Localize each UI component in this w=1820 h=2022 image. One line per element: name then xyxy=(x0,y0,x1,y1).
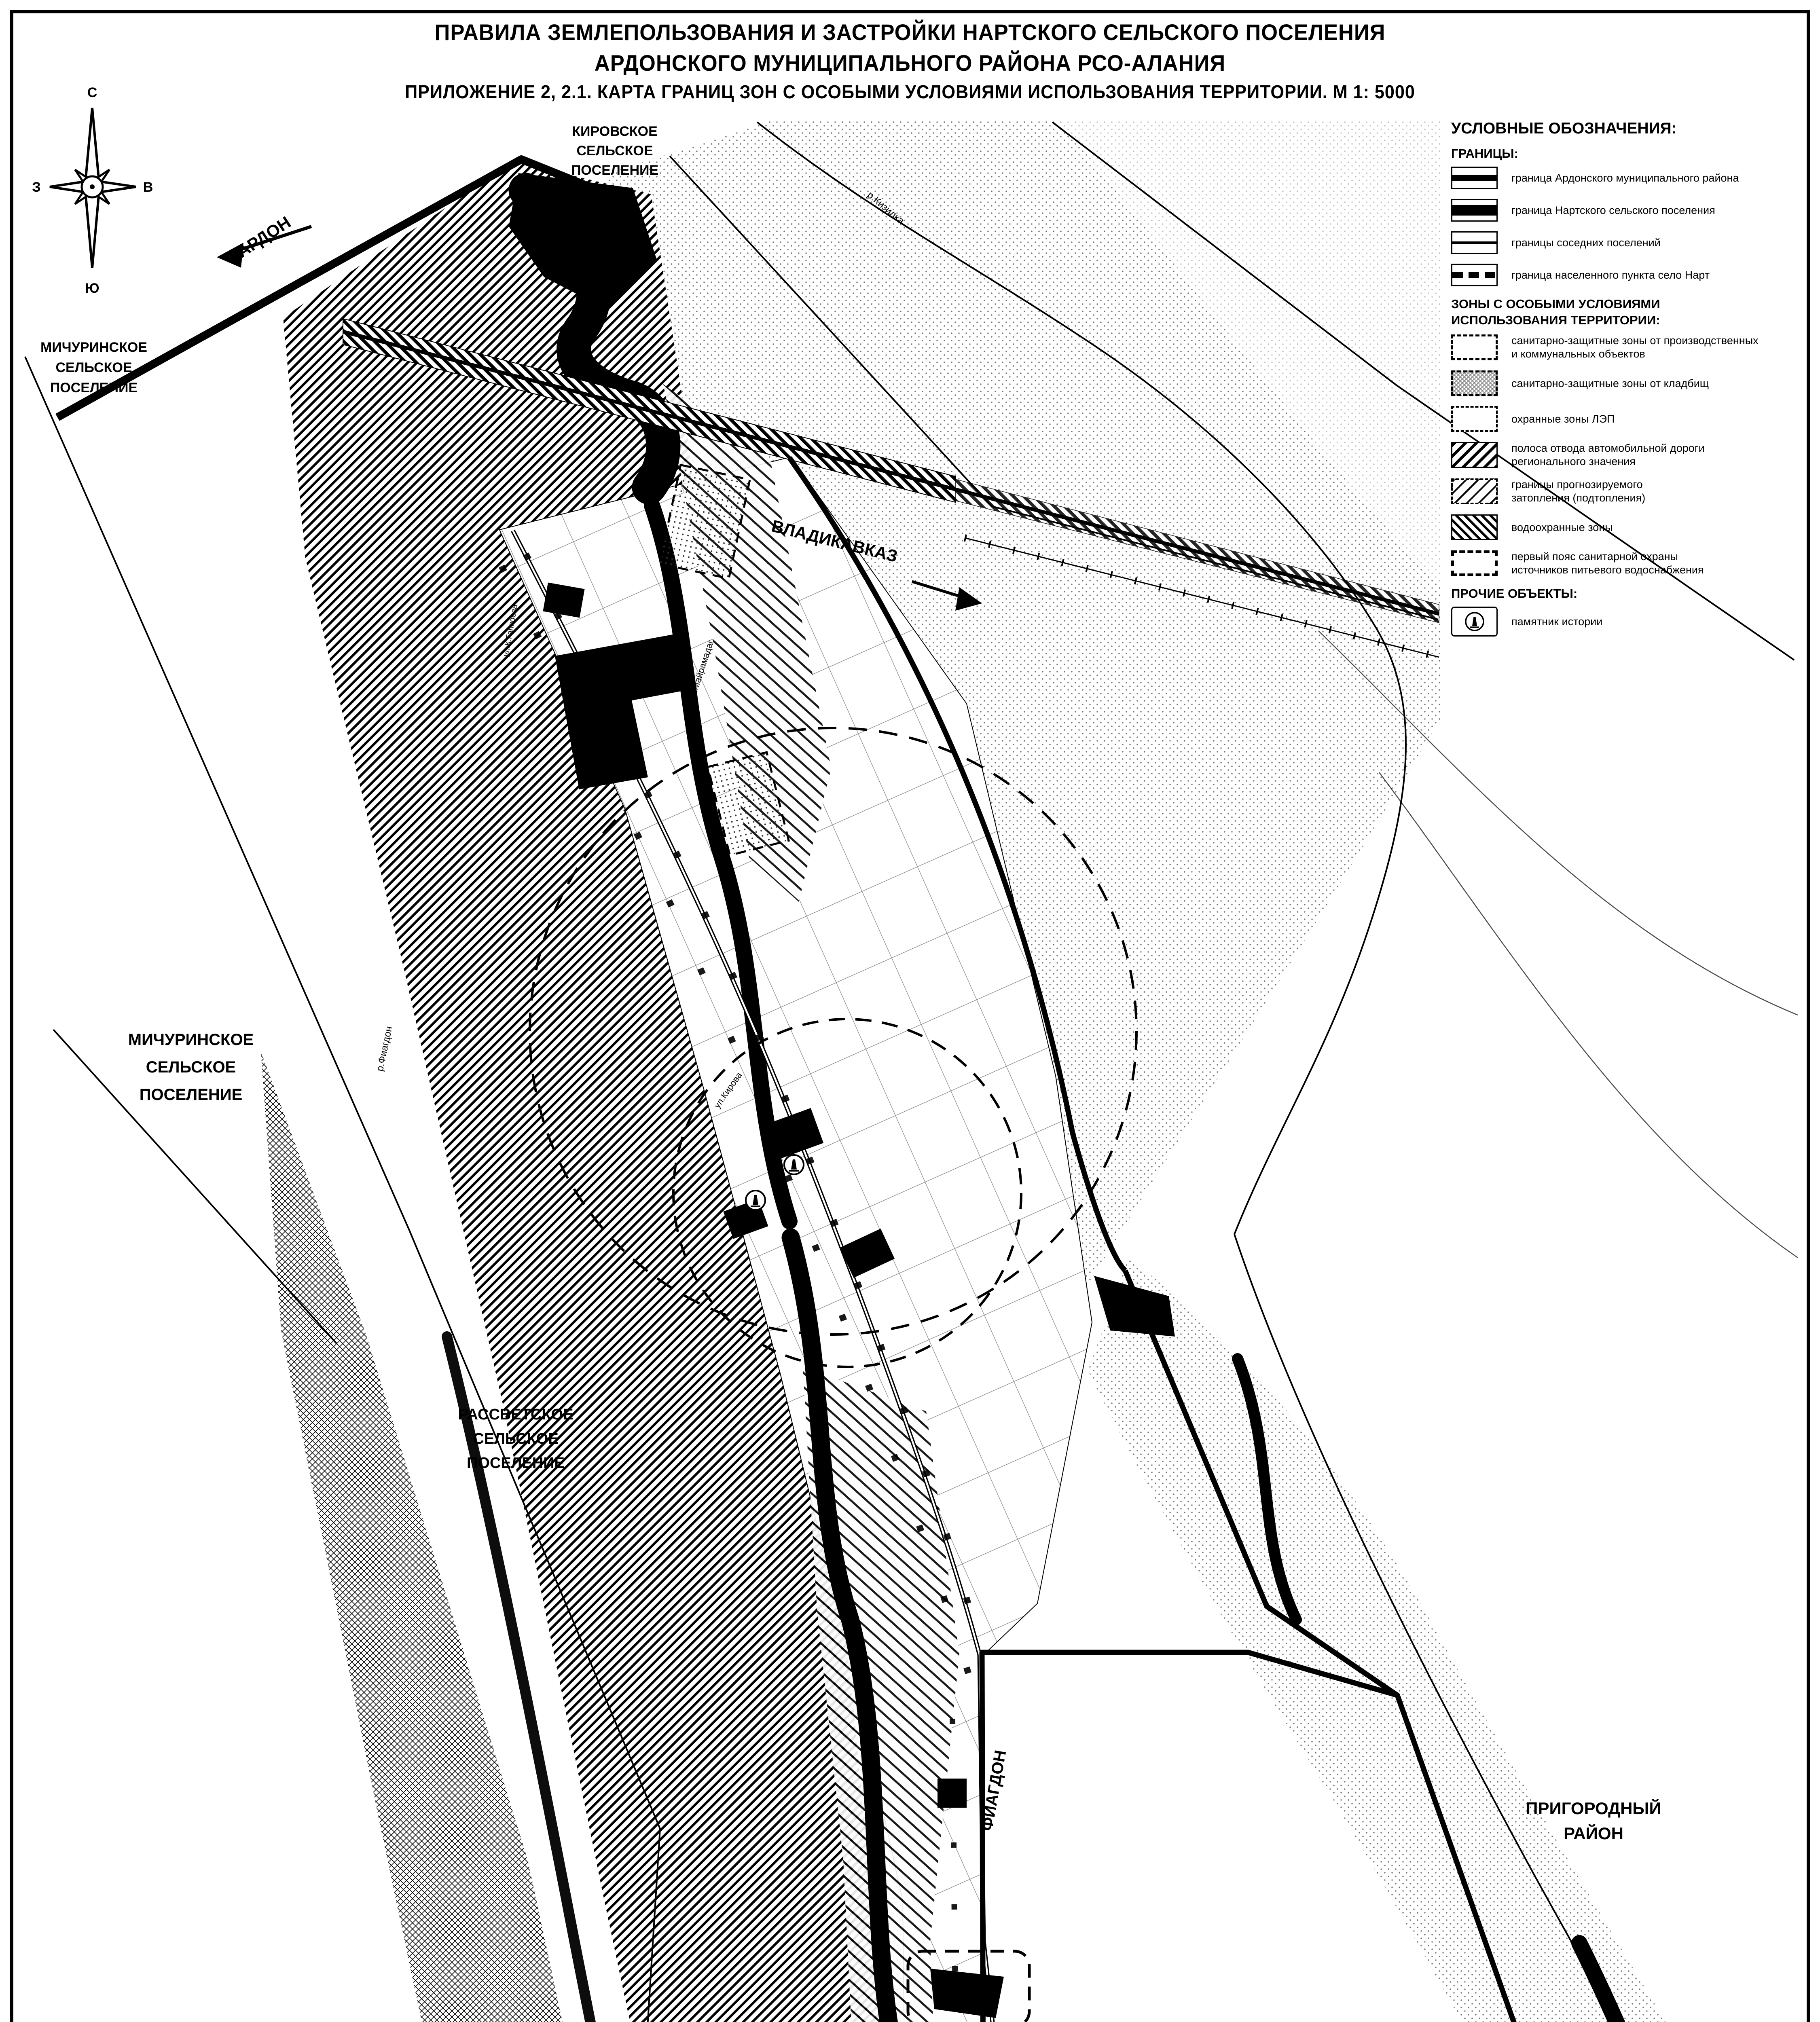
svg-text:СЕЛЬСКОЕ: СЕЛЬСКОЕ xyxy=(55,360,132,375)
monument-icon xyxy=(1464,611,1485,632)
legend-item-flood-zone: границы прогнозируемогозатопления (подто… xyxy=(1451,478,1807,505)
page-title: ПРАВИЛА ЗЕМЛЕПОЛЬЗОВАНИЯ И ЗАСТРОЙКИ НАР… xyxy=(55,17,1765,105)
svg-text:ПОСЕЛЕНИЕ: ПОСЕЛЕНИЕ xyxy=(571,163,658,178)
legend-label: граница Ардонского муниципального района xyxy=(1511,171,1739,185)
neighbor-borders-swatch xyxy=(1451,231,1498,254)
svg-text:МИЧУРИНСКОЕ: МИЧУРИНСКОЕ xyxy=(40,340,147,355)
settlement-border-swatch xyxy=(1451,199,1498,222)
legend-title: УСЛОВНЫЕ ОБОЗНАЧЕНИЯ: xyxy=(1451,120,1807,137)
legend-item-settlement-border: граница Нартского сельского поселения xyxy=(1451,199,1807,222)
history-monument-icon xyxy=(746,1191,765,1210)
monument-swatch xyxy=(1451,607,1498,637)
history-monument-icon xyxy=(784,1155,804,1174)
road-strip-swatch xyxy=(1451,442,1498,468)
compass-rose-icon: С Ю З В xyxy=(32,85,153,296)
compass-east: В xyxy=(143,180,153,195)
legend-item-water-protection: водоохранные зоны xyxy=(1451,514,1807,540)
svg-text:МИЧУРИНСКОЕ: МИЧУРИНСКОЕ xyxy=(128,1031,254,1049)
legend-item-district-border: граница Ардонского муниципального района xyxy=(1451,167,1807,189)
svg-text:ПРИГОРОДНЫЙ: ПРИГОРОДНЫЙ xyxy=(1526,1798,1661,1818)
label-michurinskoe-nw: МИЧУРИНСКОЕ СЕЛЬСКОЕ ПОСЕЛЕНИЕ xyxy=(40,340,147,396)
legend-label: граница населенного пункта село Нарт xyxy=(1511,269,1710,282)
legend-zones-heading: ЗОНЫ С ОСОБЫМИ УСЛОВИЯМИ ИСПОЛЬЗОВАНИЯ Т… xyxy=(1451,296,1807,328)
power-line-zone-swatch xyxy=(1451,406,1498,432)
svg-text:ПОСЕЛЕНИЕ: ПОСЕЛЕНИЕ xyxy=(50,380,138,396)
legend-item-san-industrial: санитарно-защитные зоны от производствен… xyxy=(1451,334,1807,361)
svg-text:РАЙОН: РАЙОН xyxy=(1564,1823,1623,1843)
svg-text:СЕЛЬСКОЕ: СЕЛЬСКОЕ xyxy=(473,1430,558,1447)
legend-item-neighbor-borders: границы соседних поселений xyxy=(1451,231,1807,254)
legend-item-first-belt: первый пояс санитарной охраныисточников … xyxy=(1451,550,1807,577)
svg-text:РАССВЕТСКОЕ: РАССВЕТСКОЕ xyxy=(458,1406,574,1423)
water-protection-swatch xyxy=(1451,514,1498,540)
title-line-1: ПРАВИЛА ЗЕМЛЕПОЛЬЗОВАНИЯ И ЗАСТРОЙКИ НАР… xyxy=(55,17,1765,48)
flood-zone-swatch xyxy=(1451,478,1498,504)
legend-item-village-border: граница населенного пункта село Нарт xyxy=(1451,264,1807,286)
label-ardon: АРДОН xyxy=(233,213,294,261)
legend-label: границы соседних поселений xyxy=(1511,236,1661,250)
compass-west: З xyxy=(32,180,40,195)
label-kirovskoe: КИРОВСКОЕ СЕЛЬСКОЕ ПОСЕЛЕНИЕ xyxy=(571,124,658,178)
legend-item-monument: памятник истории xyxy=(1451,607,1807,637)
svg-text:СЕЛЬСКОЕ: СЕЛЬСКОЕ xyxy=(576,143,653,159)
svg-text:СЕЛЬСКОЕ: СЕЛЬСКОЕ xyxy=(146,1058,236,1076)
map-sheet: С Ю З В КИРОВСКОЕ СЕЛЬСКОЕ ПОСЕЛЕНИЕ МИЧ… xyxy=(0,0,1820,2022)
legend-label: граница Нартского сельского поселения xyxy=(1511,204,1715,217)
legend-item-power-line-zone: охранные зоны ЛЭП xyxy=(1451,406,1807,432)
legend-item-san-cemetery: санитарно-защитные зоны от кладбищ xyxy=(1451,370,1807,396)
district-border-swatch xyxy=(1451,167,1498,189)
first-belt-swatch xyxy=(1451,550,1498,576)
san-cemetery-swatch xyxy=(1451,370,1498,396)
village-border-swatch xyxy=(1451,264,1498,286)
legend-borders-heading: ГРАНИЦЫ: xyxy=(1451,146,1807,161)
label-michurinskoe-w: МИЧУРИНСКОЕ СЕЛЬСКОЕ ПОСЕЛЕНИЕ xyxy=(128,1031,254,1104)
title-line-2: АРДОНСКОГО МУНИЦИПАЛЬНОГО РАЙОНА РСО-АЛА… xyxy=(55,48,1765,78)
legend: УСЛОВНЫЕ ОБОЗНАЧЕНИЯ: ГРАНИЦЫ: граница А… xyxy=(1451,120,1807,646)
svg-text:ПОСЕЛЕНИЕ: ПОСЕЛЕНИЕ xyxy=(467,1455,565,1472)
title-line-3: ПРИЛОЖЕНИЕ 2, 2.1. КАРТА ГРАНИЦ ЗОН С ОС… xyxy=(55,78,1765,105)
legend-label: памятник истории xyxy=(1511,615,1602,628)
san-industrial-swatch xyxy=(1451,334,1498,360)
svg-text:КИРОВСКОЕ: КИРОВСКОЕ xyxy=(572,124,658,139)
compass-south: Ю xyxy=(85,281,99,296)
label-river-fiagdon: р.Фиагдон xyxy=(375,1025,395,1072)
legend-item-road-strip: полоса отвода автомобильной дорогирегион… xyxy=(1451,442,1807,468)
legend-other-heading: ПРОЧИЕ ОБЪЕКТЫ: xyxy=(1451,586,1807,601)
svg-text:ПОСЕЛЕНИЕ: ПОСЕЛЕНИЕ xyxy=(140,1086,243,1104)
label-rassvetskoe-w: РАССВЕТСКОЕ СЕЛЬСКОЕ ПОСЕЛЕНИЕ xyxy=(458,1406,574,1472)
